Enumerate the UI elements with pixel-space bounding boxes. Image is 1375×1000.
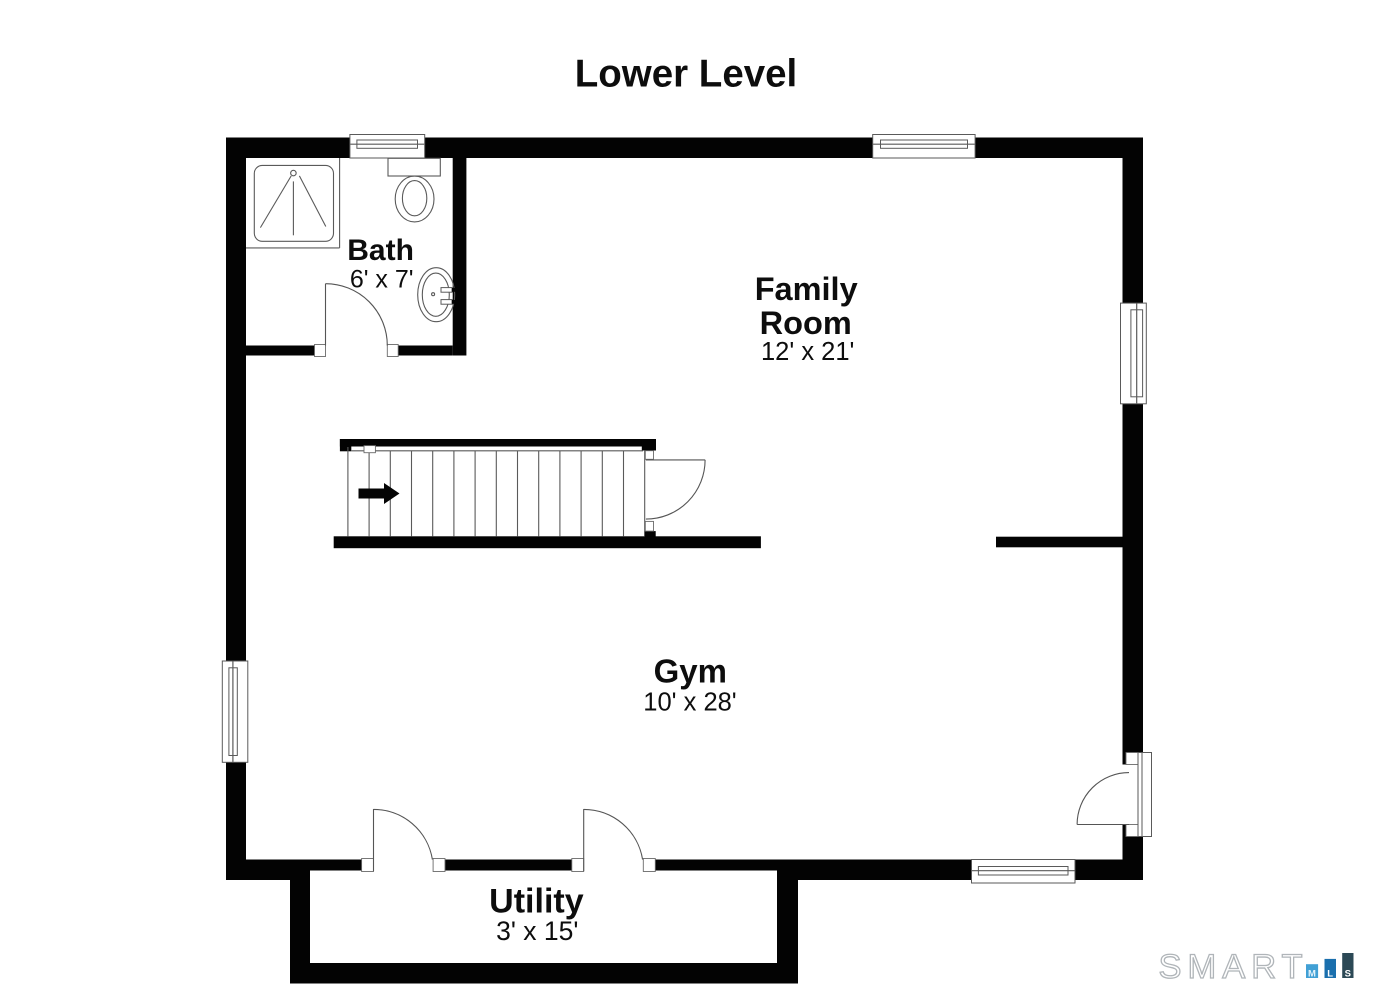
svg-text:Bath: Bath [347,234,414,267]
svg-text:Family: Family [755,271,858,307]
svg-text:12' x 21': 12' x 21' [761,338,854,366]
svg-text:3' x 15': 3' x 15' [496,916,578,946]
svg-text:S: S [1345,969,1351,980]
svg-text:6' x 7': 6' x 7' [350,266,414,294]
svg-text:Gym: Gym [654,653,727,690]
svg-text:Lower Level: Lower Level [575,53,798,96]
svg-text:L: L [1327,969,1333,980]
svg-text:SMART: SMART [1159,948,1309,986]
svg-text:10' x 28': 10' x 28' [643,689,736,717]
svg-text:M: M [1308,969,1316,980]
svg-text:Room: Room [760,305,852,341]
